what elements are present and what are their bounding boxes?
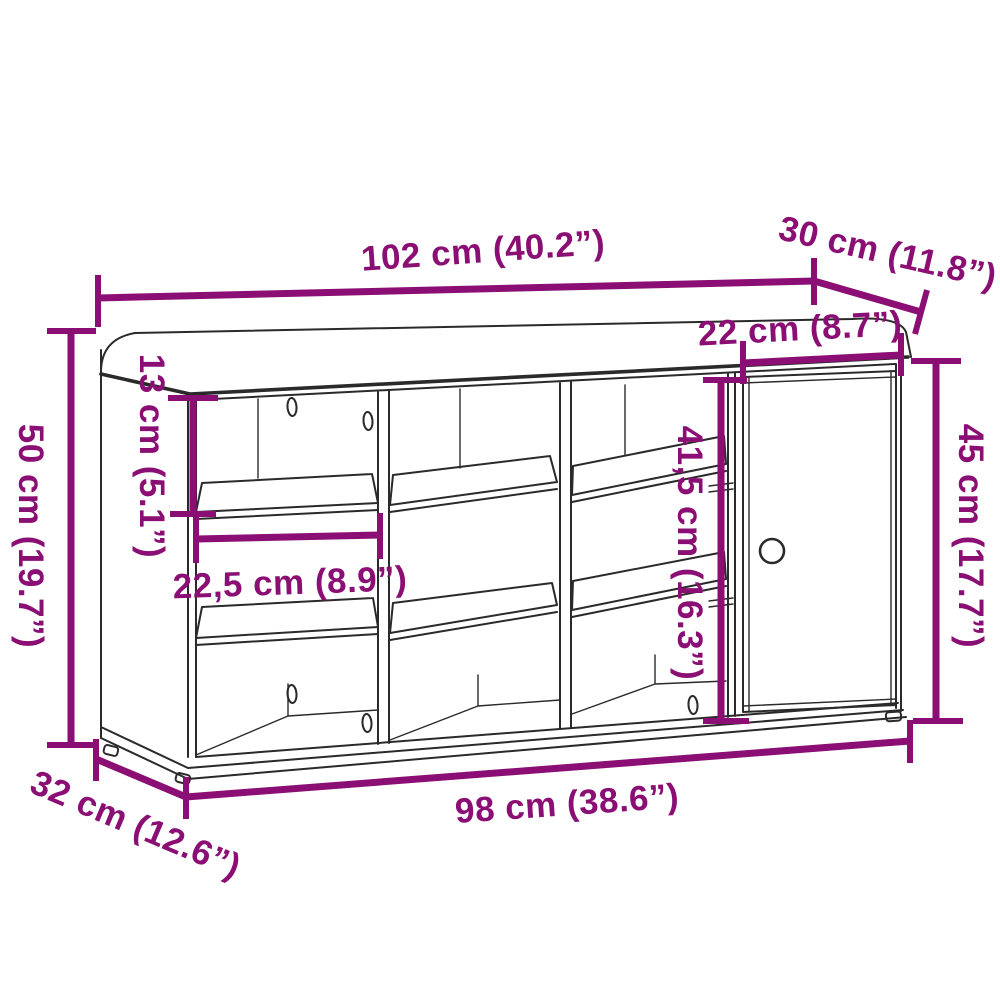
diagram-canvas: 102 cm (40.2”) 30 cm (11.8”) 22 cm (8.7”… [0, 0, 1000, 1000]
shelves-upper-row [196, 436, 726, 519]
dimension-base-depth: 32 cm (12.6”) [25, 739, 247, 886]
plinth-top [101, 710, 903, 768]
dim-label-door-height: 45 cm (17.7”) [951, 424, 990, 648]
foot-left [103, 744, 119, 756]
dim-label-interior-height: 41,5 cm (16.3”) [670, 426, 709, 681]
screw-hole [688, 696, 698, 715]
back-panel-seams [258, 385, 625, 478]
foot-right [886, 711, 902, 721]
screw-hole [287, 398, 297, 417]
dim-line-base-depth [96, 759, 186, 797]
dim-label-base-width: 98 cm (38.6”) [454, 776, 681, 831]
dimension-top-compartment-height: 13 cm (5.1”) [132, 354, 218, 558]
divider-3 [728, 373, 735, 717]
dimension-annotations: 102 cm (40.2”) 30 cm (11.8”) 22 cm (8.7”… [11, 209, 1000, 887]
dim-line-compartment-width [196, 535, 380, 539]
cabinet-door [743, 371, 896, 712]
dimension-compartment-width: 22,5 cm (8.9”) [172, 513, 408, 606]
dimension-interior-height: 41,5 cm (16.3”) [670, 380, 749, 721]
shelf-left-lower [196, 598, 378, 645]
screw-hole [287, 685, 297, 704]
shelf-left-upper [196, 474, 378, 519]
dimension-overall-height: 50 cm (19.7”) [11, 331, 96, 745]
divider-2 [560, 382, 571, 729]
dim-label-compartment-width: 22,5 cm (8.9”) [172, 559, 408, 606]
dim-label-base-depth: 32 cm (12.6”) [25, 763, 247, 887]
door-knob-shade [762, 557, 777, 563]
dimension-base-width: 98 cm (38.6”) [186, 720, 910, 831]
dim-label-overall-height: 50 cm (19.7”) [11, 424, 50, 648]
furniture-drawing [101, 319, 911, 785]
screw-hole [362, 714, 372, 733]
shelf-middle-lower [390, 583, 557, 640]
dimension-door-height: 45 cm (17.7”) [911, 361, 990, 721]
screw-hole [363, 412, 373, 431]
furniture-dimension-diagram: 102 cm (40.2”) 30 cm (11.8”) 22 cm (8.7”… [0, 0, 1000, 1000]
dim-label-top-compartment-height: 13 cm (5.1”) [132, 354, 171, 558]
body-top-edge [193, 364, 895, 400]
dim-line-door-width [743, 355, 901, 363]
shelf-middle-upper [390, 456, 557, 512]
dim-label-door-width: 22 cm (8.7”) [697, 304, 903, 354]
dimension-top-width: 102 cm (40.2”) [98, 223, 814, 327]
dim-label-top-width: 102 cm (40.2”) [360, 223, 607, 279]
dim-line-top-width [98, 281, 814, 298]
